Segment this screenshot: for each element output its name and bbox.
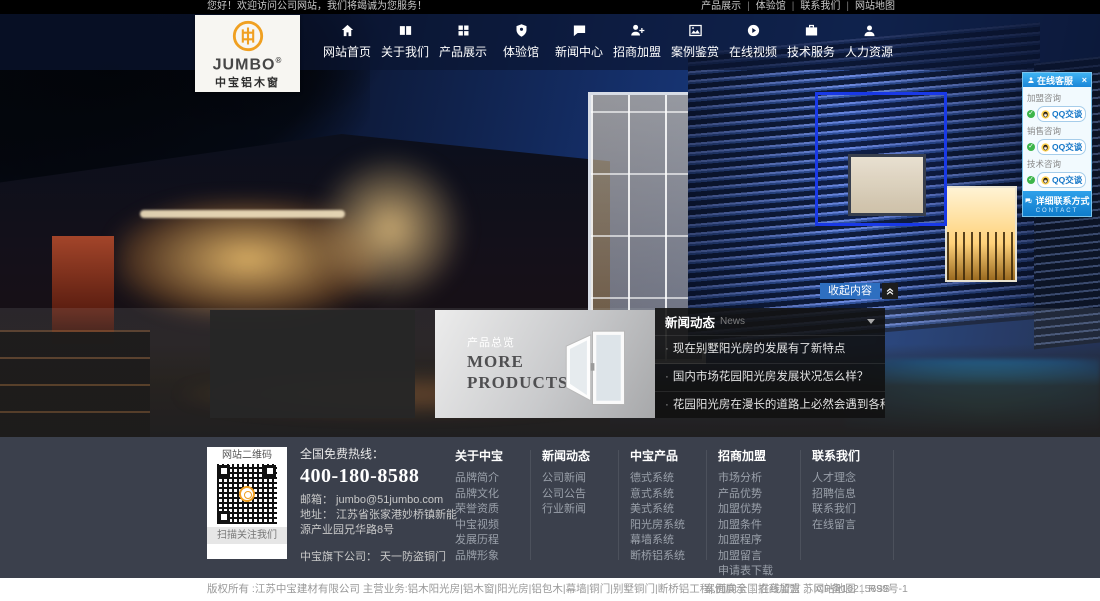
footer-link[interactable]: 幕墙系统 xyxy=(630,533,710,549)
footer-link[interactable]: 行业新闻 xyxy=(542,502,622,518)
online-service-title: 在线客服 xyxy=(1037,74,1082,87)
nav-label: 在线视频 xyxy=(724,43,782,60)
top-bar: 您好！欢迎访问公司网站，我们将竭诚为您服务！ 产品展示 | 体验馆 | 联系我们… xyxy=(0,0,1100,14)
divider: | xyxy=(806,578,809,601)
nav-label: 网站首页 xyxy=(318,43,376,60)
footer-column-title: 招商加盟 xyxy=(718,447,798,464)
footer-column-about: 关于中宝 品牌简介 品牌文化 荣誉资质 中宝视频 发展历程 品牌形象 xyxy=(455,447,535,564)
divider: | xyxy=(751,578,754,601)
footer-link[interactable]: 加盟留言 xyxy=(718,549,798,565)
nav-label: 案例鉴赏 xyxy=(666,43,724,60)
divider: | xyxy=(861,578,864,601)
hotline-label: 全国免费热线： xyxy=(300,445,458,462)
top-link-showroom[interactable]: 体验馆 xyxy=(756,0,786,14)
nav-label: 招商加盟 xyxy=(608,43,666,60)
logo-icon xyxy=(195,19,300,53)
qq-chat-button[interactable]: QQ交谈 xyxy=(1037,172,1086,188)
footer-link[interactable]: 德式系统 xyxy=(630,471,710,487)
footer-link[interactable]: 公司新闻 xyxy=(542,471,622,487)
nav-item-home[interactable]: 网站首页 xyxy=(318,14,376,70)
footer-link[interactable]: 加盟优势 xyxy=(718,502,798,518)
chevron-down-icon[interactable] xyxy=(867,319,875,324)
user-icon xyxy=(840,23,898,39)
footer-link[interactable]: 发展历程 xyxy=(455,533,535,549)
top-links: 产品展示 | 体验馆 | 联系我们 | 网站地图 xyxy=(701,0,895,14)
qq-chat-label: QQ交谈 xyxy=(1052,141,1082,153)
qq-chat-label: QQ交谈 xyxy=(1052,174,1082,186)
bullet: · xyxy=(665,371,669,383)
main-nav: 网站首页 关于我们 产品展示 体验馆 新闻中心 招商加盟 案例鉴赏 在线视频 xyxy=(0,14,1100,70)
window-product-image xyxy=(557,318,645,412)
subsidiary-line: 中宝旗下公司： 天一防盗铜门 xyxy=(300,548,458,564)
footer-link[interactable]: 加盟条件 xyxy=(718,518,798,534)
qq-chat-button[interactable]: QQ交谈 xyxy=(1037,139,1086,155)
banner-dark-panel xyxy=(210,310,415,418)
qr-card: 网站二维码 扫描关注我们 xyxy=(207,447,287,559)
nav-item-cases[interactable]: 案例鉴赏 xyxy=(666,14,724,70)
hero-window-glow xyxy=(315,154,465,304)
news-item-text: 花园阳光房在漫长的道路上必然会遇到各种挑战 xyxy=(673,399,885,411)
footer-link[interactable]: 加盟程序 xyxy=(718,533,798,549)
footer-divider xyxy=(530,450,531,560)
footer-column-products: 中宝产品 德式系统 意式系统 美式系统 阳光房系统 幕墙系统 断桥铝系统 xyxy=(630,447,710,564)
divider: | xyxy=(747,0,750,14)
nav-label: 关于我们 xyxy=(376,43,434,60)
qq-chat-button[interactable]: QQ交谈 xyxy=(1037,106,1086,122)
collapse-button[interactable]: 收起内容 xyxy=(820,283,880,299)
footer-link[interactable]: 招聘信息 xyxy=(812,487,892,503)
products-overview-tag: 产品总览 xyxy=(467,334,515,350)
footer-link[interactable]: 荣誉资质 xyxy=(455,502,535,518)
nav-label: 技术服务 xyxy=(782,43,840,60)
contact-details-button[interactable]: 详细联系方式 CONTACT xyxy=(1023,191,1091,216)
contact-details-sub: CONTACT xyxy=(1023,208,1091,214)
qr-finder xyxy=(218,511,230,523)
photo-icon xyxy=(666,23,724,39)
footer-link[interactable]: 联系我们 xyxy=(812,502,892,518)
nav-label: 产品展示 xyxy=(434,43,492,60)
footer-divider xyxy=(893,450,894,560)
news-header: 新闻动态 News xyxy=(655,308,885,335)
chat-icon xyxy=(550,23,608,39)
welcome-text: 您好！欢迎访问公司网站，我们将竭诚为您服务！ xyxy=(207,0,427,14)
footer-column-franchise: 招商加盟 市场分析 产品优势 加盟优势 加盟条件 加盟程序 加盟留言 申请表下载 xyxy=(718,447,798,580)
qq-penguin-icon xyxy=(1041,110,1050,119)
online-service-header: 在线客服 × xyxy=(1023,73,1091,87)
nav-label: 体验馆 xyxy=(492,43,550,60)
footer-link[interactable]: 品牌文化 xyxy=(455,487,535,503)
grid-icon xyxy=(434,23,492,39)
qq-chat-label: QQ交谈 xyxy=(1052,108,1082,120)
nav-item-hr[interactable]: 人力资源 xyxy=(840,14,898,70)
bottom-link-rss[interactable]: RSS xyxy=(868,578,890,601)
briefcase-icon xyxy=(782,23,840,39)
shield-icon xyxy=(492,23,550,39)
footer: 网站二维码 扫描关注我们 全国免费热线： 400-180-8588 邮箱： ju… xyxy=(0,437,1100,578)
close-icon[interactable]: × xyxy=(1082,75,1087,85)
selection-rectangle xyxy=(815,92,947,226)
footer-column-news: 新闻动态 公司新闻 公司公告 行业新闻 xyxy=(542,447,622,518)
news-title: 新闻动态 xyxy=(665,312,715,331)
qr-finder xyxy=(264,465,276,477)
service-group-label: 技术咨询 xyxy=(1027,158,1087,170)
qr-center-logo xyxy=(239,486,255,502)
nav-label: 人力资源 xyxy=(840,43,898,60)
qr-caption: 扫描关注我们 xyxy=(207,527,287,544)
qr-code xyxy=(217,464,277,524)
footer-contact: 全国免费热线： 400-180-8588 邮箱： jumbo@51jumbo.c… xyxy=(300,445,458,564)
nav-item-news[interactable]: 新闻中心 xyxy=(550,14,608,70)
registered-mark: ® xyxy=(275,56,282,65)
qr-finder xyxy=(218,465,230,477)
qq-penguin-icon xyxy=(1041,143,1050,152)
news-subtitle: News xyxy=(720,316,867,327)
footer-column-title: 中宝产品 xyxy=(630,447,710,464)
nav-items: 网站首页 关于我们 产品展示 体验馆 新闻中心 招商加盟 案例鉴赏 在线视频 xyxy=(318,14,898,70)
news-item[interactable]: ·现在别墅阳光房的发展有了新特点 xyxy=(655,335,885,363)
nav-item-about[interactable]: 关于我们 xyxy=(376,14,434,70)
footer-column-contact: 联系我们 人才理念 招聘信息 联系我们 在线留言 xyxy=(812,447,892,533)
email-line: 邮箱： jumbo@51jumbo.com xyxy=(300,493,458,508)
qr-title: 网站二维码 xyxy=(207,447,287,464)
footer-link[interactable]: 美式系统 xyxy=(630,502,710,518)
logo[interactable]: JUMBO® 中宝铝木窗 xyxy=(195,15,300,92)
news-item[interactable]: ·国内市场花园阳光房发展状况怎么样？ xyxy=(655,363,885,391)
footer-link[interactable]: 品牌简介 xyxy=(455,471,535,487)
user-plus-icon xyxy=(608,23,666,39)
service-group-label: 销售咨询 xyxy=(1027,125,1087,137)
nav-item-showroom[interactable]: 体验馆 xyxy=(492,14,550,70)
footer-link[interactable]: 断桥铝系统 xyxy=(630,549,710,565)
contact-details-label: 详细联系方式 xyxy=(1035,196,1089,206)
news-panel: 新闻动态 News ·现在别墅阳光房的发展有了新特点 ·国内市场花园阳光房发展状… xyxy=(655,308,885,418)
more-products-title: MORE xyxy=(467,352,524,372)
footer-link[interactable]: 在线留言 xyxy=(812,518,892,534)
footer-divider xyxy=(706,450,707,560)
footer-column-title: 关于中宝 xyxy=(455,447,535,464)
hero-balcony-railing xyxy=(947,232,1015,280)
chevron-double-up-icon[interactable] xyxy=(882,283,898,299)
footer-link[interactable]: 人才理念 xyxy=(812,471,892,487)
news-item-text: 现在别墅阳光房的发展有了新特点 xyxy=(673,343,846,355)
play-icon xyxy=(724,23,782,39)
top-link-contact[interactable]: 联系我们 xyxy=(800,0,840,14)
bottom-link-message[interactable]: 在线留言 xyxy=(759,578,801,601)
address-line: 地址： 江苏省张家港妙桥镇新能源产业园兄华路8号 xyxy=(300,508,458,538)
hero-ceiling-light xyxy=(140,210,345,218)
bullet: · xyxy=(665,343,669,355)
service-group-label: 加盟咨询 xyxy=(1027,92,1087,104)
bullet: · xyxy=(665,399,669,411)
news-item[interactable]: ·花园阳光房在漫长的道路上必然会遇到各种挑战 xyxy=(655,391,885,419)
footer-divider xyxy=(800,450,801,560)
top-link-products[interactable]: 产品展示 xyxy=(701,0,741,14)
online-service-body: 加盟咨询 ✓ QQ交谈 销售咨询 ✓ QQ交谈 技术咨询 ✓ QQ交谈 xyxy=(1023,87,1091,191)
footer-column-title: 新闻动态 xyxy=(542,447,622,464)
footer-link[interactable]: 阳光房系统 xyxy=(630,518,710,534)
qq-chat-row[interactable]: ✓ QQ交谈 xyxy=(1027,172,1087,188)
bottom-links: 案例展示 | 在线留言 | 网站地图 | RSS xyxy=(704,578,890,601)
divider: | xyxy=(792,0,795,14)
chat-icon xyxy=(1024,197,1033,205)
online-status-icon: ✓ xyxy=(1027,143,1035,151)
nav-item-service[interactable]: 技术服务 xyxy=(782,14,840,70)
logo-subtitle: 中宝铝木窗 xyxy=(195,74,300,90)
online-status-icon: ✓ xyxy=(1027,176,1035,184)
footer-column-title: 联系我们 xyxy=(812,447,892,464)
top-link-sitemap[interactable]: 网站地图 xyxy=(855,0,895,14)
online-service-panel: 在线客服 × 加盟咨询 ✓ QQ交谈 销售咨询 ✓ QQ交谈 技术咨询 ✓ QQ… xyxy=(1022,72,1092,217)
nav-label: 新闻中心 xyxy=(550,43,608,60)
logo-name: JUMBO® xyxy=(195,53,300,73)
qq-chat-row[interactable]: ✓ QQ交谈 xyxy=(1027,139,1087,155)
home-icon xyxy=(318,23,376,39)
nav-item-products[interactable]: 产品展示 xyxy=(434,14,492,70)
book-icon xyxy=(376,23,434,39)
footer-link[interactable]: 产品优势 xyxy=(718,487,798,503)
footer-divider xyxy=(618,450,619,560)
qq-penguin-icon xyxy=(1041,176,1050,185)
footer-link[interactable]: 意式系统 xyxy=(630,487,710,503)
bottom-bar: 版权所有 :江苏中宝建材有限公司 主营业务:铝木阳光房|铝木窗|阳光房|铝包木|… xyxy=(0,578,1100,601)
footer-link[interactable]: 中宝视频 xyxy=(455,518,535,534)
nav-item-videos[interactable]: 在线视频 xyxy=(724,14,782,70)
hotline-number: 400-180-8588 xyxy=(300,465,458,488)
news-item-text: 国内市场花园阳光房发展状况怎么样？ xyxy=(673,371,869,383)
more-products-panel[interactable]: 产品总览 MORE PRODUCTS xyxy=(435,310,655,418)
collapse-control: 收起内容 xyxy=(820,283,898,299)
footer-link[interactable]: 品牌形象 xyxy=(455,549,535,565)
qq-chat-row[interactable]: ✓ QQ交谈 xyxy=(1027,106,1087,122)
footer-link[interactable]: 公司公告 xyxy=(542,487,622,503)
user-icon xyxy=(1027,76,1035,84)
divider: | xyxy=(846,0,849,14)
bottom-link-cases[interactable]: 案例展示 xyxy=(704,578,746,601)
footer-link[interactable]: 市场分析 xyxy=(718,471,798,487)
nav-item-franchise[interactable]: 招商加盟 xyxy=(608,14,666,70)
bottom-link-sitemap[interactable]: 网站地图 xyxy=(814,578,856,601)
online-status-icon: ✓ xyxy=(1027,110,1035,118)
more-products-title: PRODUCTS xyxy=(467,373,569,393)
